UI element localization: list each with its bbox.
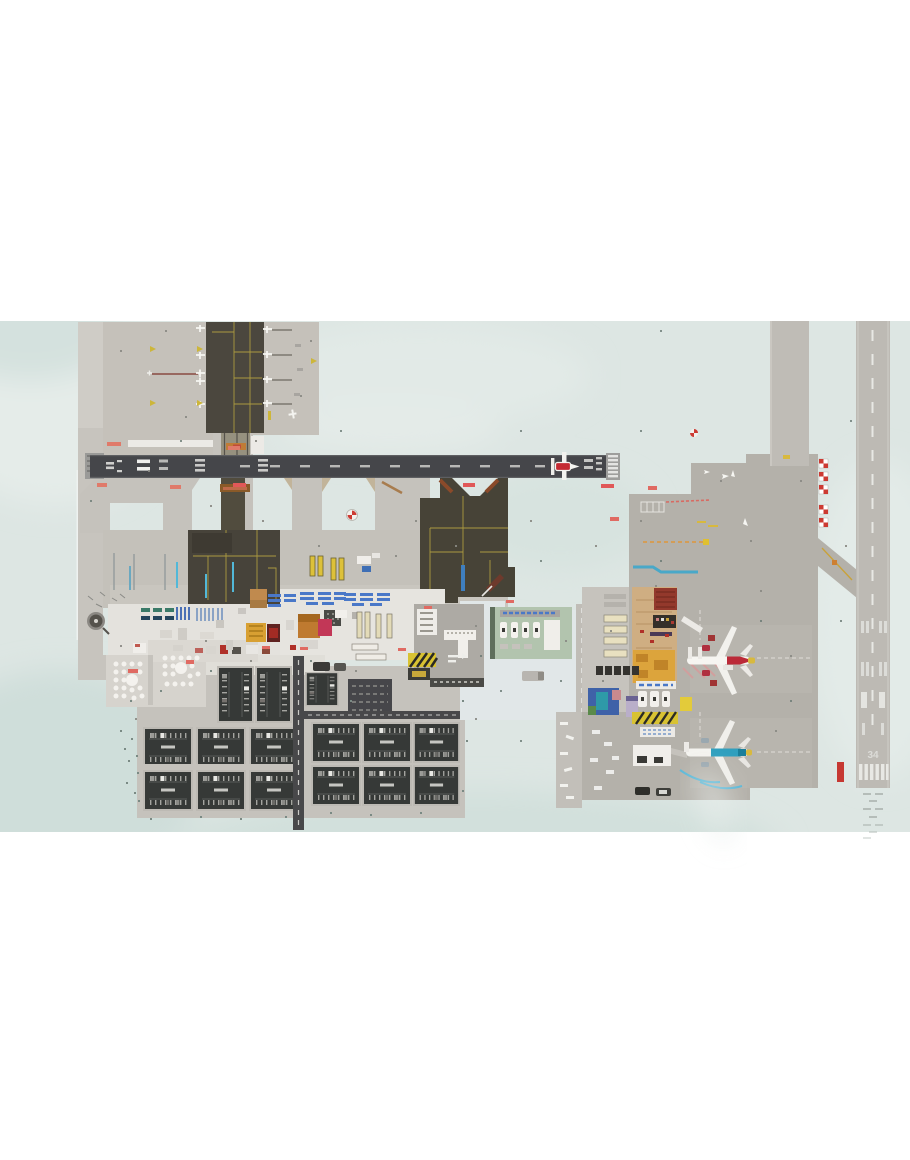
svg-text:34: 34 — [867, 750, 879, 761]
